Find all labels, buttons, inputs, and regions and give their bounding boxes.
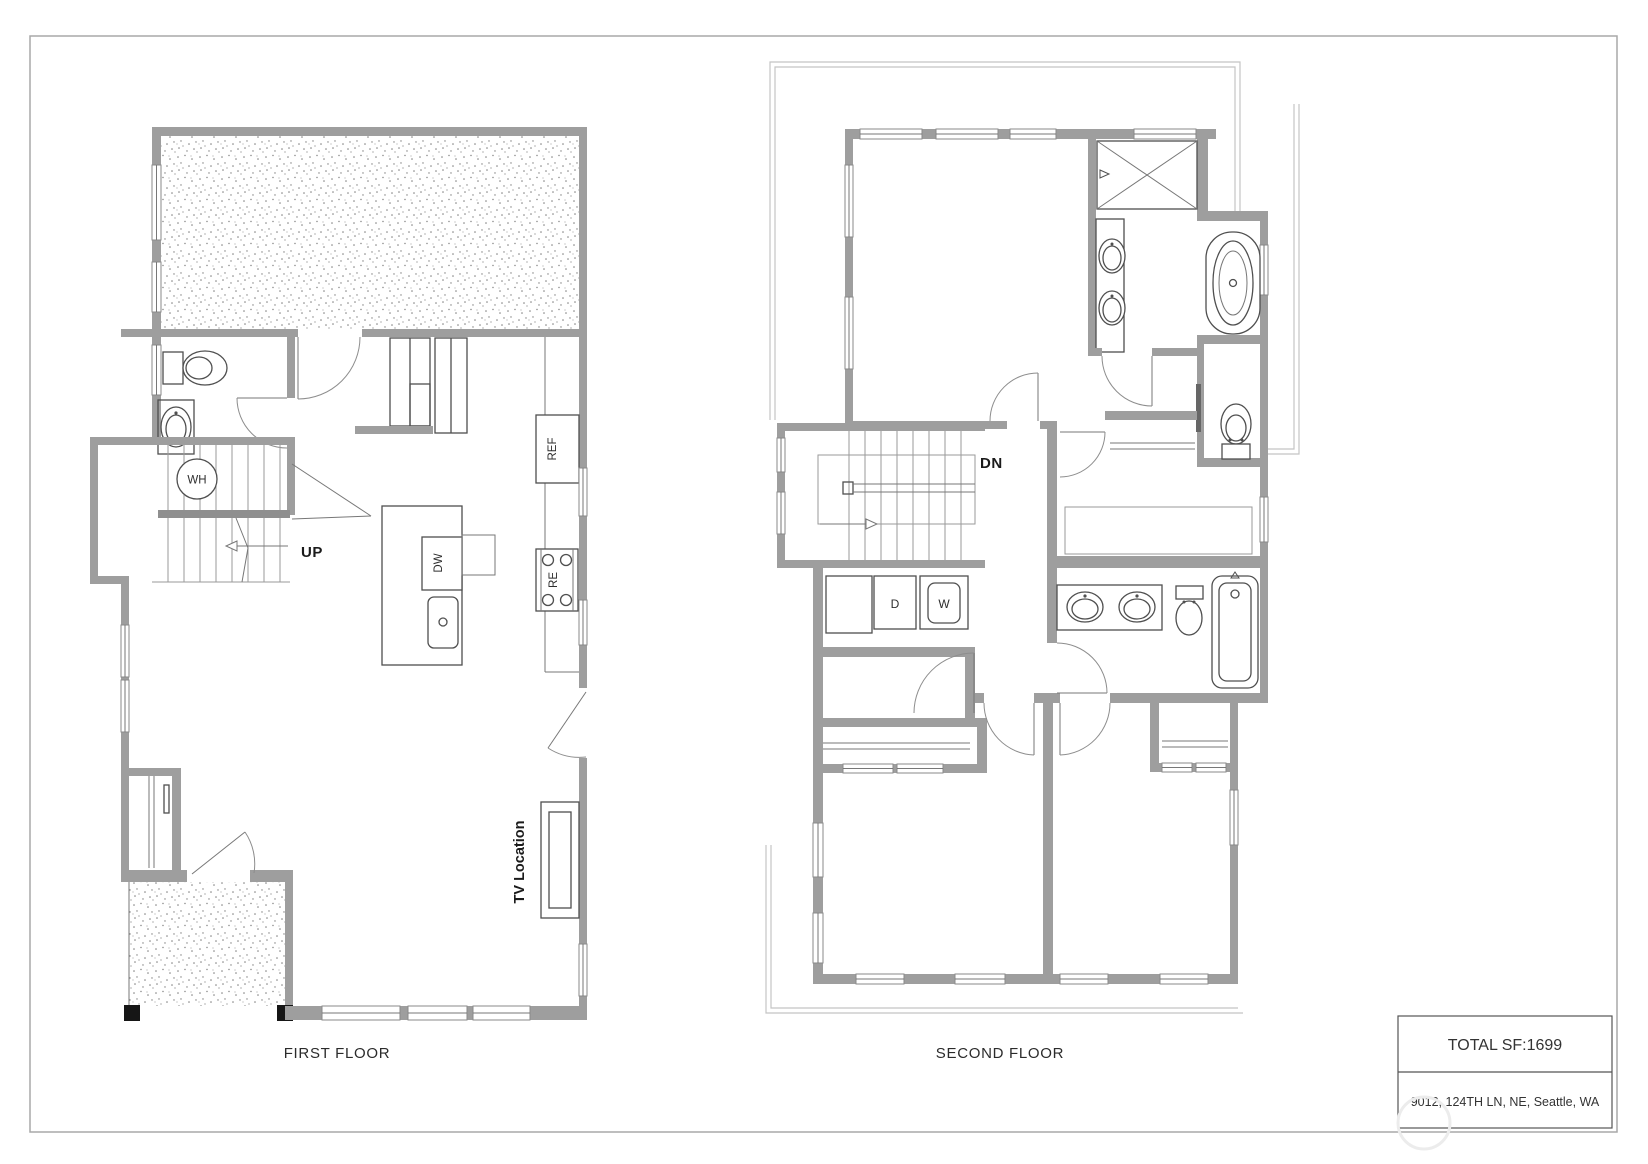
stair-treads-lower — [152, 518, 290, 582]
refrigerator-label: REF — [547, 438, 559, 461]
up-arrow — [226, 541, 288, 551]
island-stool — [462, 535, 495, 575]
bedroom3-closet — [1150, 703, 1238, 772]
hall-bathroom — [1057, 572, 1258, 693]
master-vanity — [1096, 219, 1125, 352]
dryer: D — [874, 576, 916, 629]
master-bedroom-door — [990, 373, 1038, 421]
sink-icon — [158, 400, 194, 454]
hall-bath-toilet — [1176, 586, 1203, 635]
dishwasher: DW — [422, 537, 462, 590]
closet-door — [1060, 432, 1105, 477]
stair-treads — [849, 431, 961, 560]
second-floor-stairs: DN — [818, 431, 1003, 560]
entry-cabinets — [355, 338, 467, 434]
entry-door — [292, 464, 371, 519]
total-sf-label: TOTAL SF:1699 — [1448, 1037, 1563, 1054]
floor-plan-drawing: WH UP REF — [0, 0, 1648, 1164]
first-floor-bottom-wall — [285, 1006, 587, 1020]
garage-window — [152, 165, 161, 312]
first-floor-stairs: WH UP — [90, 437, 371, 584]
garage-door — [298, 337, 360, 399]
washer-label: W — [938, 597, 950, 611]
water-closet — [1196, 335, 1268, 467]
hall-bath-door — [1057, 643, 1107, 693]
bathtub-icon — [1206, 232, 1260, 334]
title-block: TOTAL SF:1699 9012, 124TH LN, NE, Seattl… — [1398, 1016, 1612, 1149]
porch-post — [124, 1005, 140, 1021]
hall-bath-tub — [1212, 572, 1258, 688]
range: RE — [536, 549, 578, 611]
kitchen-side-door — [548, 688, 587, 758]
tv-location-label: TV Location — [512, 821, 528, 904]
dishwasher-label: DW — [433, 553, 445, 572]
front-porch — [124, 882, 293, 1021]
first-floor-title: FIRST FLOOR — [284, 1045, 391, 1062]
second-floor-title: SECOND FLOOR — [936, 1045, 1064, 1062]
range-label: RE — [548, 572, 560, 588]
master-bedroom — [845, 129, 1096, 429]
master-bath-door — [1102, 356, 1152, 406]
second-floor-plan: DN D — [766, 62, 1299, 1062]
stair-break-line — [236, 518, 248, 582]
laundry: D W — [813, 576, 975, 718]
kitchen-island: DW — [382, 506, 495, 665]
up-label: UP — [301, 544, 323, 561]
front-door — [192, 832, 255, 874]
hall-bath-vanity — [1057, 585, 1162, 630]
first-floor-plan: WH UP REF — [90, 127, 587, 1062]
dryer-label: D — [891, 597, 900, 611]
refrigerator: REF — [536, 415, 579, 483]
toilet-icon — [163, 351, 227, 385]
floor-plan-sheet: WH UP REF — [0, 0, 1648, 1164]
water-heater-label: WH — [187, 475, 206, 487]
powder-room — [152, 337, 295, 454]
bedroom2-closet — [813, 718, 987, 773]
tv-niche — [541, 802, 579, 918]
living-room: TV Location — [121, 576, 579, 918]
water-heater: WH — [177, 459, 217, 499]
island-sink-icon — [428, 597, 458, 648]
coat-closet — [129, 768, 181, 870]
hall-walls — [965, 411, 1268, 974]
dn-label: DN — [980, 455, 1003, 472]
stair-rail — [843, 482, 975, 494]
washer: W — [920, 576, 968, 629]
shower-icon — [1097, 141, 1197, 209]
